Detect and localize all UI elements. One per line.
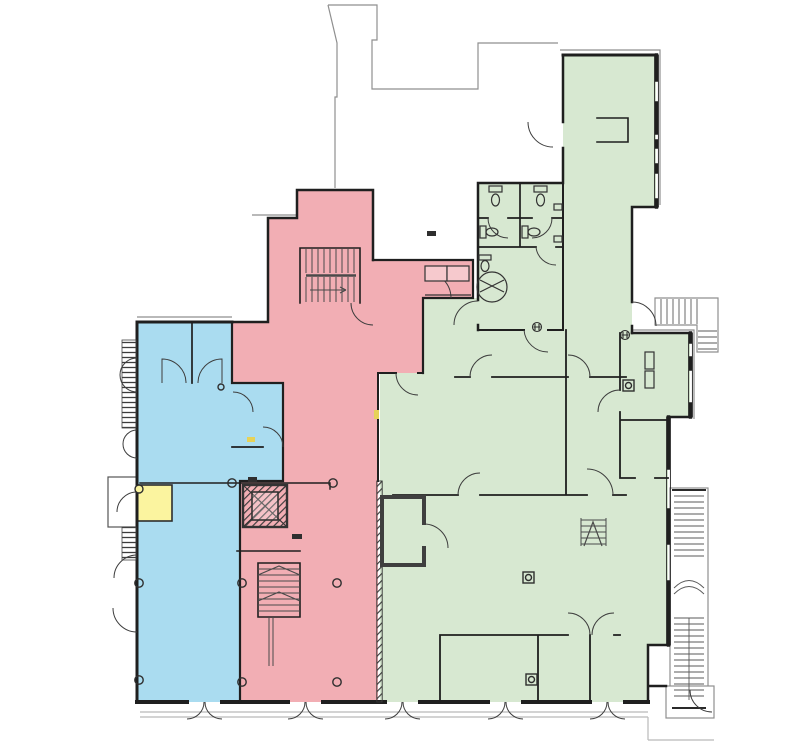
cabinet [425, 266, 447, 281]
west-door-recess-box [108, 477, 137, 527]
elevator-shaft [243, 485, 287, 527]
door-tag-yellow [374, 410, 379, 419]
door-tag-yellow [247, 437, 255, 442]
elevator-car [252, 492, 278, 520]
floor-plan-drawing [0, 0, 793, 756]
stair-treads [698, 331, 717, 349]
door-tag [248, 477, 257, 482]
sidewalk-lines [140, 712, 714, 740]
zone-east-green [380, 55, 690, 702]
door-arc [632, 302, 656, 326]
cabinet [447, 266, 469, 281]
floor-plan-canvas [0, 0, 793, 756]
door-arc [528, 122, 553, 147]
door-tag [292, 534, 302, 539]
column-on-wall [135, 485, 143, 493]
north-shaft-outline [328, 5, 337, 188]
north-tower-outline [328, 5, 558, 89]
west-window-band-1 [122, 340, 136, 428]
escape-stair [672, 490, 706, 708]
stair-treads [661, 299, 697, 324]
stair-treads [674, 496, 704, 556]
stair-landing-arcs [674, 581, 704, 595]
zones [137, 55, 690, 702]
door-tag [427, 231, 436, 236]
